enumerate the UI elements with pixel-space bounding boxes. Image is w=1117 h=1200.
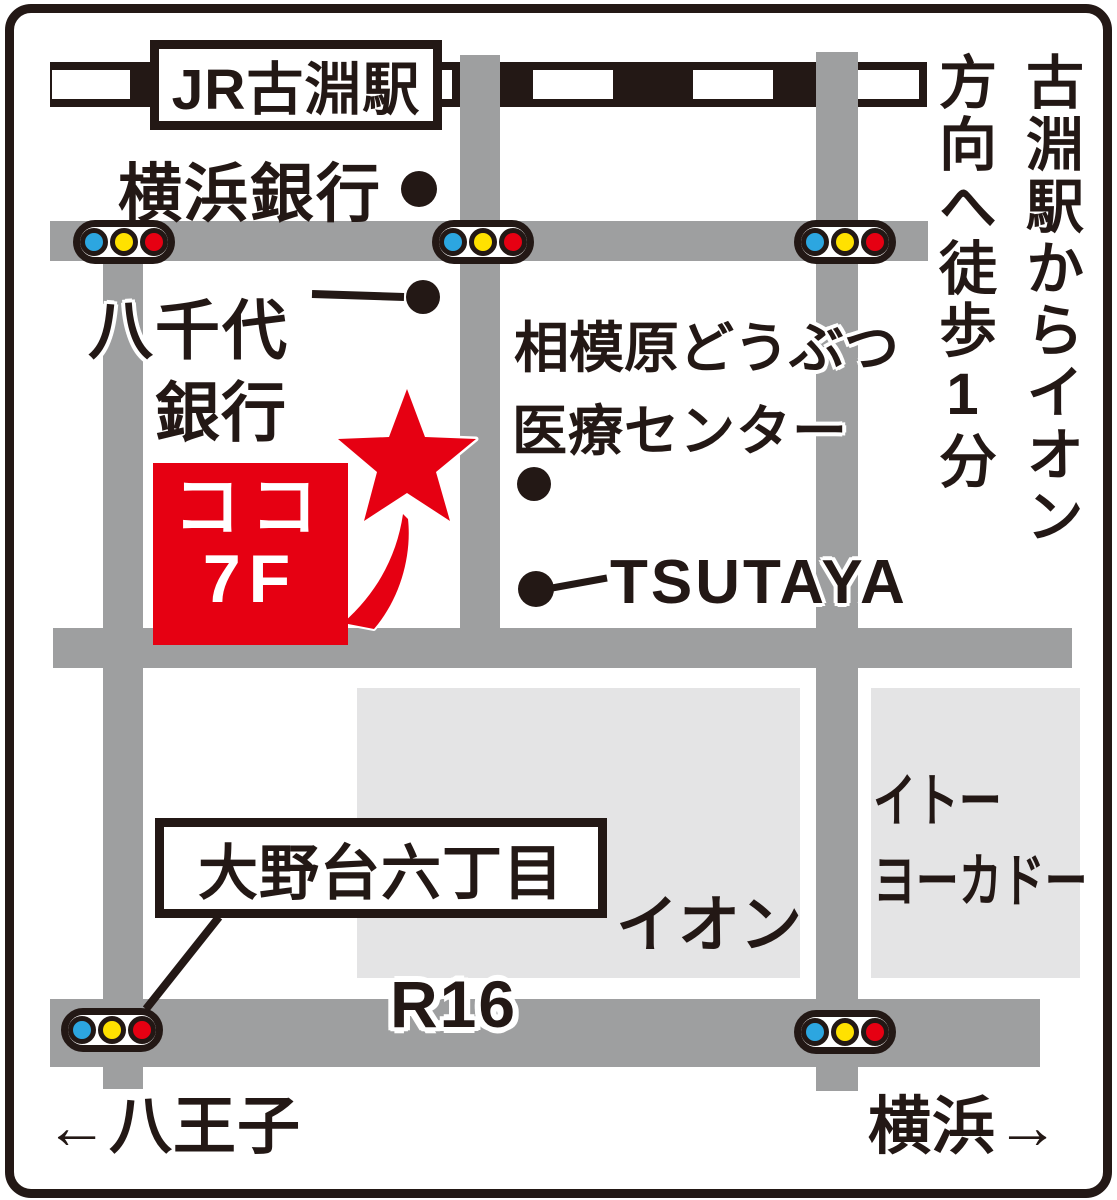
label-animal-center-line1: 相模原どうぶつ xyxy=(514,303,899,383)
railway-dash xyxy=(852,70,919,99)
here-star-icon xyxy=(338,389,476,629)
signal-red-lamp xyxy=(140,228,168,256)
poi-dot-animal-center xyxy=(517,467,551,501)
signal-yellow-lamp xyxy=(110,228,138,256)
station-label: JR古淵駅 xyxy=(172,44,421,126)
label-tsutaya: TSUTAYA xyxy=(610,547,908,618)
here-label-line2: 7F xyxy=(153,543,348,615)
signal-blue-lamp xyxy=(80,228,108,256)
here-marker-box: ココ 7F xyxy=(153,463,348,645)
traffic-light-icon xyxy=(73,220,175,264)
walk-note: 古淵駅からイオン方向へ徒歩1分 xyxy=(919,52,1093,562)
signal-yellow-lamp xyxy=(469,228,497,256)
signal-red-lamp xyxy=(861,1018,889,1046)
intersection-name-box: 大野台六丁目 xyxy=(155,818,607,918)
access-map: JR古淵駅 大野台六丁目 ココ 7F 横浜銀行 八千代 銀行 相模原どうぶつ 医… xyxy=(0,0,1117,1200)
signal-red-lamp xyxy=(128,1016,156,1044)
label-direction-yokohama: 横浜→ xyxy=(868,1076,1060,1167)
railway-dash xyxy=(693,70,773,99)
intersection-label: 大野台六丁目 xyxy=(198,825,564,912)
station-name-box: JR古淵駅 xyxy=(150,40,442,130)
intersection-leader-line xyxy=(146,917,219,1009)
yachiyo-leader-line xyxy=(312,294,404,297)
signal-blue-lamp xyxy=(68,1016,96,1044)
traffic-light-icon xyxy=(61,1008,163,1052)
signal-red-lamp xyxy=(499,228,527,256)
signal-yellow-lamp xyxy=(98,1016,126,1044)
road-vertical-center xyxy=(460,55,500,668)
label-direction-hachioji: ←八王子 xyxy=(45,1076,301,1167)
signal-blue-lamp xyxy=(439,228,467,256)
poi-dot-yokohama-bank xyxy=(401,171,437,207)
traffic-light-icon xyxy=(794,220,896,264)
label-aeon: イオン xyxy=(616,874,802,964)
signal-blue-lamp xyxy=(801,1018,829,1046)
label-yachiyo-bank-line2: 銀行 xyxy=(155,360,287,454)
poi-dot-yachiyo-bank xyxy=(406,280,440,314)
tsutaya-leader-line xyxy=(552,578,607,588)
traffic-light-icon xyxy=(432,220,534,264)
label-yachiyo-bank-line1: 八千代 xyxy=(88,278,289,372)
traffic-light-icon xyxy=(794,1010,896,1054)
label-ito-yokado-line1: イトー xyxy=(873,762,1088,842)
label-route16: R16 xyxy=(390,966,517,1042)
signal-blue-lamp xyxy=(801,228,829,256)
railway-dash xyxy=(52,70,130,99)
label-ito-yokado: イトー ヨーカドー xyxy=(873,762,1088,922)
label-animal-center-line2: 医療センター xyxy=(512,386,848,466)
here-label-line1: ココ xyxy=(153,473,348,543)
signal-yellow-lamp xyxy=(831,228,859,256)
railway-dash xyxy=(533,70,613,99)
signal-red-lamp xyxy=(861,228,889,256)
signal-yellow-lamp xyxy=(831,1018,859,1046)
label-ito-yokado-line2: ヨーカドー xyxy=(873,842,1088,922)
poi-dot-tsutaya xyxy=(518,571,554,607)
